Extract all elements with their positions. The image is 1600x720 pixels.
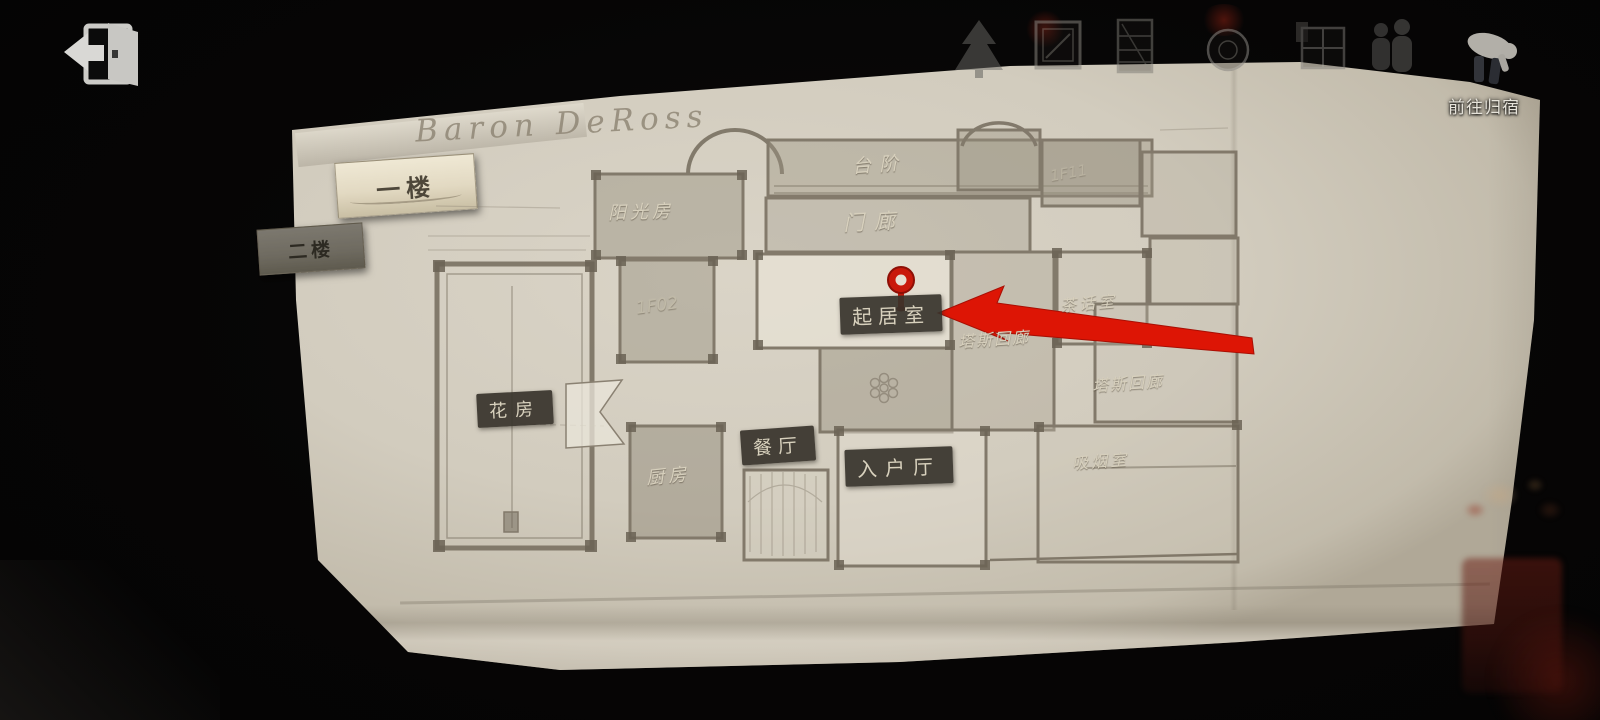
- room-outlines: [437, 123, 1238, 566]
- cabinet-icon[interactable]: [1106, 14, 1162, 78]
- room-label-sunroom: 阳光房: [608, 197, 675, 225]
- figures-icon[interactable]: [1364, 14, 1420, 80]
- room-label-flower-house: 花房: [476, 390, 554, 428]
- room-label-tea-room: 茶话室: [1059, 288, 1118, 317]
- room-label-kitchen: 厨房: [645, 460, 691, 490]
- room-label-dining-room: 餐厅: [740, 425, 816, 465]
- door-exit-icon: [58, 20, 144, 90]
- room-label-entrance-hall: 入户厅: [844, 446, 953, 487]
- room-label-steps: 台阶: [851, 148, 907, 179]
- painting-icon[interactable]: [1028, 14, 1086, 76]
- tree-icon[interactable]: [950, 14, 1008, 80]
- game-screen: Baron DeRoss 一楼 二楼: [0, 0, 1600, 720]
- window-icon[interactable]: [1292, 14, 1350, 76]
- floor-plan: [0, 0, 1600, 720]
- room-label-tass-corridor-2: 塔斯回廊: [1091, 368, 1165, 397]
- room-label-living-room: 起居室: [839, 294, 942, 335]
- go-home-label[interactable]: 前往归宿: [1448, 93, 1558, 118]
- room-label-tass-corridor-1: 塔斯回廊: [957, 324, 1031, 353]
- room-label-porch: 门廊: [842, 204, 905, 237]
- homestead-person-icon[interactable]: [1452, 14, 1530, 92]
- plate-icon[interactable]: [1196, 14, 1260, 82]
- room-label-smoking-room: 吸烟室: [1071, 446, 1130, 474]
- back-button[interactable]: [58, 20, 144, 90]
- bay-shape: [566, 380, 624, 448]
